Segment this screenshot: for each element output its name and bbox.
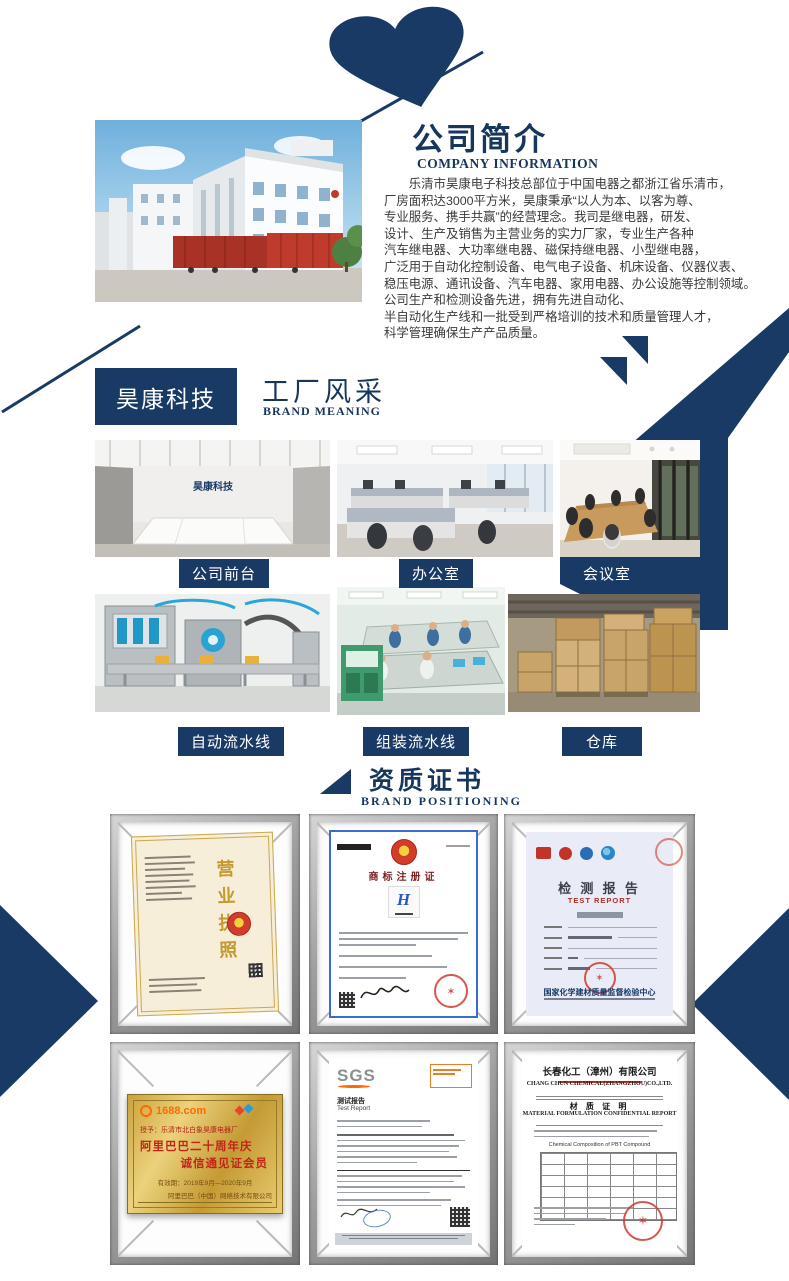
certificate-frame-sgs: SGS 测试报告 Test Report [309, 1042, 498, 1265]
sgs-swoosh [338, 1085, 370, 1088]
sgs-report-cert: SGS 测试报告 Test Report [317, 1050, 490, 1257]
sgs-logo: SGS [337, 1066, 376, 1086]
assembly-line-photo [337, 587, 505, 715]
photo-label-office: 办公室 [399, 559, 473, 588]
photo-label-automated-line: 自动流水线 [178, 727, 284, 756]
trademark-qr-code [339, 992, 355, 1008]
national-emblem-icon [227, 912, 252, 937]
license-qr-code [248, 963, 262, 977]
sgs-title-en: Test Report [337, 1105, 370, 1112]
material-report-cert: 长春化工（漳州）有限公司 CHANG CHUN CHEMICAL(ZHANGZH… [512, 1050, 687, 1257]
photo-label-assembly-line: 组装流水线 [363, 727, 469, 756]
plaque-line1: 阿里巴巴二十周年庆 [140, 1138, 253, 1154]
test-report-title-en: TEST REPORT [526, 896, 673, 905]
sgs-qr-code [450, 1207, 470, 1227]
material-company-cn: 长春化工（漳州）有限公司 [522, 1064, 677, 1078]
meeting-room-photo [560, 440, 700, 557]
right-arrow-triangle [692, 908, 789, 1100]
1688-dot-icon [140, 1105, 152, 1117]
cma-logo-icon [536, 847, 551, 859]
heart-icon [326, 3, 473, 119]
front-desk-photo: 昊康科技 [95, 440, 330, 557]
material-red-seal: ✶ [623, 1201, 663, 1241]
trademark-cert: 商标注册证 H ✶ [317, 822, 490, 1026]
cert-heading-triangle-icon [320, 769, 351, 794]
material-table-caption: Chemical Composition of PBT Compound [522, 1142, 677, 1148]
photo-label-front-desk: 公司前台 [179, 559, 269, 588]
office-photo [337, 440, 553, 557]
certificate-frame-test-report: 检 测 报 告 TEST REPORT ✶ 国家化学建材质量监督检验中心 [504, 814, 695, 1034]
trademark-logo: H [397, 890, 410, 909]
reception-wall-logo: 昊康科技 [193, 480, 234, 493]
photo-label-meeting-room: 会议室 [570, 559, 644, 588]
automated-line-photo [95, 594, 330, 712]
factory-building-photo [95, 120, 362, 302]
band-diagonal-line [2, 326, 140, 412]
plaque-line2: 诚信通见证会员 [181, 1155, 269, 1171]
photo-label-warehouse: 仓库 [562, 727, 642, 756]
business-license-cert: 营业执照 [118, 822, 292, 1026]
red-seal: ✶ [434, 974, 468, 1008]
test-report-title-cn: 检 测 报 告 [526, 878, 673, 897]
plaque-company: 阿里巴巴（中国）网络技术有限公司 [168, 1190, 272, 1200]
material-title-en: MATERIAL FORMULATION CONFIDENTIAL REPORT [522, 1111, 677, 1117]
certificate-frame-plaque: 1688.com 授予：乐清市北白象昊康电器厂 阿里巴巴二十周年庆 诚信通见证会… [110, 1042, 300, 1265]
cnas-logo-icon [559, 847, 572, 860]
chengxintong-logo-icon [236, 1105, 252, 1117]
trademark-title: 商标注册证 [331, 868, 476, 883]
material-company-en: CHANG CHUN CHEMICAL(ZHANGZHOU)CO.,LTD. [522, 1081, 677, 1087]
test-report-issuer: 国家化学建材质量监督检验中心 [526, 987, 673, 998]
test-report-cert: 检 测 报 告 TEST REPORT ✶ 国家化学建材质量监督检验中心 [512, 822, 687, 1026]
ilac-logo-icon [580, 847, 593, 860]
plaque-validity: 有效期：2019年9月—2020年9月 [128, 1177, 282, 1187]
national-emblem-icon [391, 839, 417, 865]
company-profile-page: 公司简介 COMPANY INFORMATION 乐清市昊康电子科技总部位于中国… [0, 0, 789, 1281]
corner-seal [655, 838, 683, 866]
small-triangle-icon [600, 357, 627, 385]
gold-plaque-cert: 1688.com 授予：乐清市北白象昊康电器厂 阿里巴巴二十周年庆 诚信通见证会… [118, 1050, 292, 1257]
certificate-frame-business-license: 营业执照 [110, 814, 300, 1034]
certificate-frame-trademark: 商标注册证 H ✶ [309, 814, 498, 1034]
left-arrow-triangle [0, 905, 98, 1097]
globe-logo-icon [601, 846, 615, 860]
warehouse-photo [508, 594, 700, 712]
certificate-frame-material: 长春化工（漳州）有限公司 CHANG CHUN CHEMICAL(ZHANGZH… [504, 1042, 695, 1265]
plaque-awarded: 授予：乐清市北白象昊康电器厂 [140, 1125, 238, 1135]
plaque-site: 1688.com [156, 1105, 206, 1117]
signature [359, 982, 411, 1004]
